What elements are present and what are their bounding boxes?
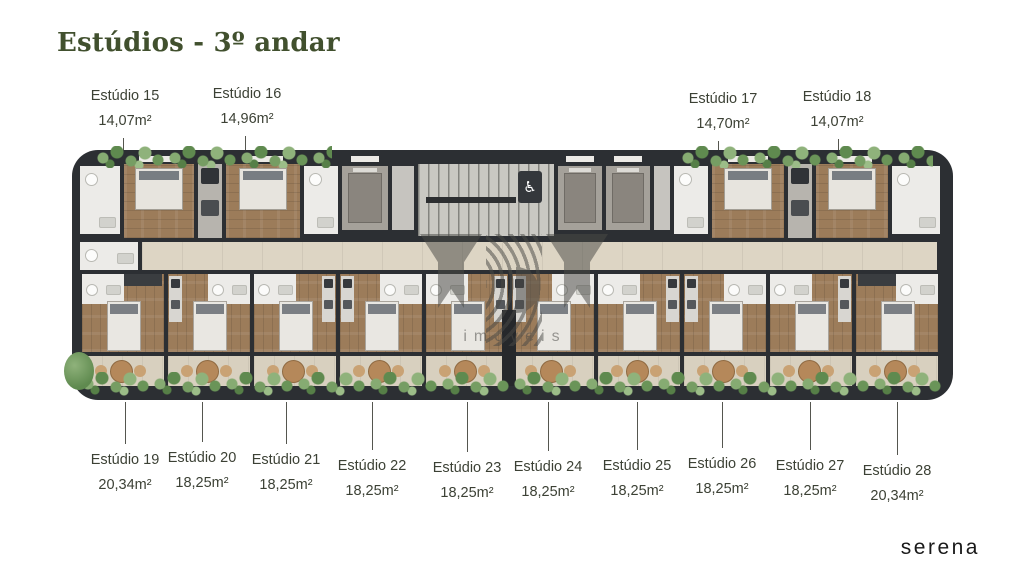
elevator-door-slit: [351, 156, 379, 162]
studio-unit: [254, 274, 336, 352]
unit-name: Estúdio 24: [514, 455, 583, 480]
unit-name: Estúdio 20: [168, 446, 237, 471]
unit-area: 14,70m²: [689, 112, 758, 137]
unit-name: Estúdio 17: [689, 87, 758, 112]
leader-line: [125, 402, 126, 444]
leader-line: [286, 402, 287, 444]
unit-area: 18,25m²: [688, 477, 757, 502]
studio-room: [226, 164, 300, 238]
bathroom: [254, 274, 296, 304]
bathroom: [304, 166, 338, 234]
elevator: [342, 166, 388, 230]
unit-area: 20,34m²: [91, 473, 160, 498]
unit-label-estudio-23: Estúdio 23 18,25m²: [433, 456, 502, 506]
kitchenette-shaft: [198, 164, 222, 238]
unit-name: Estúdio 27: [776, 454, 845, 479]
unit-area: 18,25m²: [252, 473, 321, 498]
unit-name: Estúdio 22: [338, 454, 407, 479]
kitchenette: [169, 276, 182, 322]
bed: [881, 301, 915, 351]
studio-unit: [168, 274, 250, 352]
floor-plan-page: Estúdios - 3º andar Estúdio 15 14,07m² E…: [0, 0, 1024, 576]
unit-area: 14,96m²: [213, 107, 282, 132]
planter-hedge: [680, 146, 933, 168]
leader-line: [372, 402, 373, 450]
bed: [107, 301, 141, 351]
studio-unit: [82, 274, 164, 352]
leader-line: [548, 402, 549, 451]
unit-name: Estúdio 26: [688, 452, 757, 477]
bed: [623, 301, 657, 351]
leader-line: [810, 402, 811, 450]
unit-name: Estúdio 25: [603, 454, 672, 479]
unit-area: 14,07m²: [803, 110, 872, 135]
kitchenette: [666, 276, 679, 322]
kitchenette: [341, 276, 354, 322]
unit-label-estudio-24: Estúdio 24 18,25m²: [514, 455, 583, 505]
unit-label-estudio-25: Estúdio 25 18,25m²: [603, 454, 672, 504]
bathroom: [724, 274, 766, 304]
bed: [724, 168, 772, 210]
unit-label-estudio-27: Estúdio 27 18,25m²: [776, 454, 845, 504]
kitchenette: [838, 276, 851, 322]
bathroom: [674, 166, 708, 234]
unit-area: 18,25m²: [514, 480, 583, 505]
bed: [279, 301, 313, 351]
studio-unit: [856, 274, 938, 352]
unit-label-estudio-21: Estúdio 21 18,25m²: [252, 448, 321, 498]
unit-area: 18,25m²: [433, 481, 502, 506]
page-title: Estúdios - 3º andar: [57, 28, 340, 58]
studio-room: [712, 164, 784, 238]
leader-line: [637, 402, 638, 450]
watermark-letter-m: [420, 234, 482, 308]
bed: [709, 301, 743, 351]
bed: [135, 168, 183, 210]
leader-line: [202, 402, 203, 442]
unit-label-estudio-26: Estúdio 26 18,25m²: [688, 452, 757, 502]
watermark-logo: imóveis: [420, 234, 610, 358]
leader-line: [897, 402, 898, 455]
kitchenette: [124, 274, 162, 286]
unit-label-estudio-28: Estúdio 28 20,34m²: [863, 459, 932, 509]
bathroom: [892, 166, 940, 234]
watermark-subtext: imóveis: [405, 328, 625, 346]
bathroom: [896, 274, 938, 304]
unit-name: Estúdio 19: [91, 448, 160, 473]
elevator-door-slit: [614, 156, 642, 162]
kitchenette: [322, 276, 335, 322]
elevator-shaft: [654, 166, 670, 230]
brand-logo: serena: [901, 536, 980, 560]
unit-area: 18,25m²: [338, 479, 407, 504]
elevator: [558, 166, 602, 230]
bed: [795, 301, 829, 351]
planter-hedge: [80, 372, 946, 398]
unit-name: Estúdio 21: [252, 448, 321, 473]
elevator-door-slit: [566, 156, 594, 162]
kitchenette: [685, 276, 698, 322]
bathroom: [770, 274, 812, 304]
bed: [365, 301, 399, 351]
unit-area: 18,25m²: [603, 479, 672, 504]
unit-area: 14,07m²: [91, 109, 160, 134]
unit-label-estudio-15: Estúdio 15 14,07m²: [91, 84, 160, 134]
bathroom: [80, 242, 138, 270]
unit-name: Estúdio 16: [213, 82, 282, 107]
watermark-letter-m: [546, 234, 608, 308]
unit-label-estudio-20: Estúdio 20 18,25m²: [168, 446, 237, 496]
elevator: [606, 166, 650, 230]
studio-room: [124, 164, 194, 238]
unit-name: Estúdio 23: [433, 456, 502, 481]
bathroom: [82, 274, 124, 304]
bed: [193, 301, 227, 351]
studio-unit: [684, 274, 766, 352]
bed: [828, 168, 876, 210]
kitchenette-shaft: [788, 164, 812, 238]
unit-label-estudio-18: Estúdio 18 14,07m²: [803, 85, 872, 135]
studio-room: [816, 164, 888, 238]
bed: [239, 168, 287, 210]
staircase: ♿: [418, 164, 554, 236]
planter-hedge: [95, 146, 332, 168]
studio-unit: [770, 274, 852, 352]
unit-label-estudio-19: Estúdio 19 20,34m²: [91, 448, 160, 498]
leader-line: [467, 402, 468, 452]
accessibility-icon: ♿: [518, 171, 542, 203]
bathroom: [380, 274, 422, 304]
unit-name: Estúdio 15: [91, 84, 160, 109]
unit-area: 18,25m²: [776, 479, 845, 504]
bathroom: [208, 274, 250, 304]
unit-label-estudio-17: Estúdio 17 14,70m²: [689, 87, 758, 137]
elevator-shaft: [392, 166, 414, 230]
corner-bush: [64, 352, 94, 390]
bathroom: [80, 166, 120, 234]
unit-label-estudio-16: Estúdio 16 14,96m²: [213, 82, 282, 132]
unit-label-estudio-22: Estúdio 22 18,25m²: [338, 454, 407, 504]
unit-name: Estúdio 28: [863, 459, 932, 484]
unit-area: 20,34m²: [863, 484, 932, 509]
kitchenette: [858, 274, 896, 286]
unit-area: 18,25m²: [168, 471, 237, 496]
leader-line: [722, 402, 723, 448]
unit-name: Estúdio 18: [803, 85, 872, 110]
